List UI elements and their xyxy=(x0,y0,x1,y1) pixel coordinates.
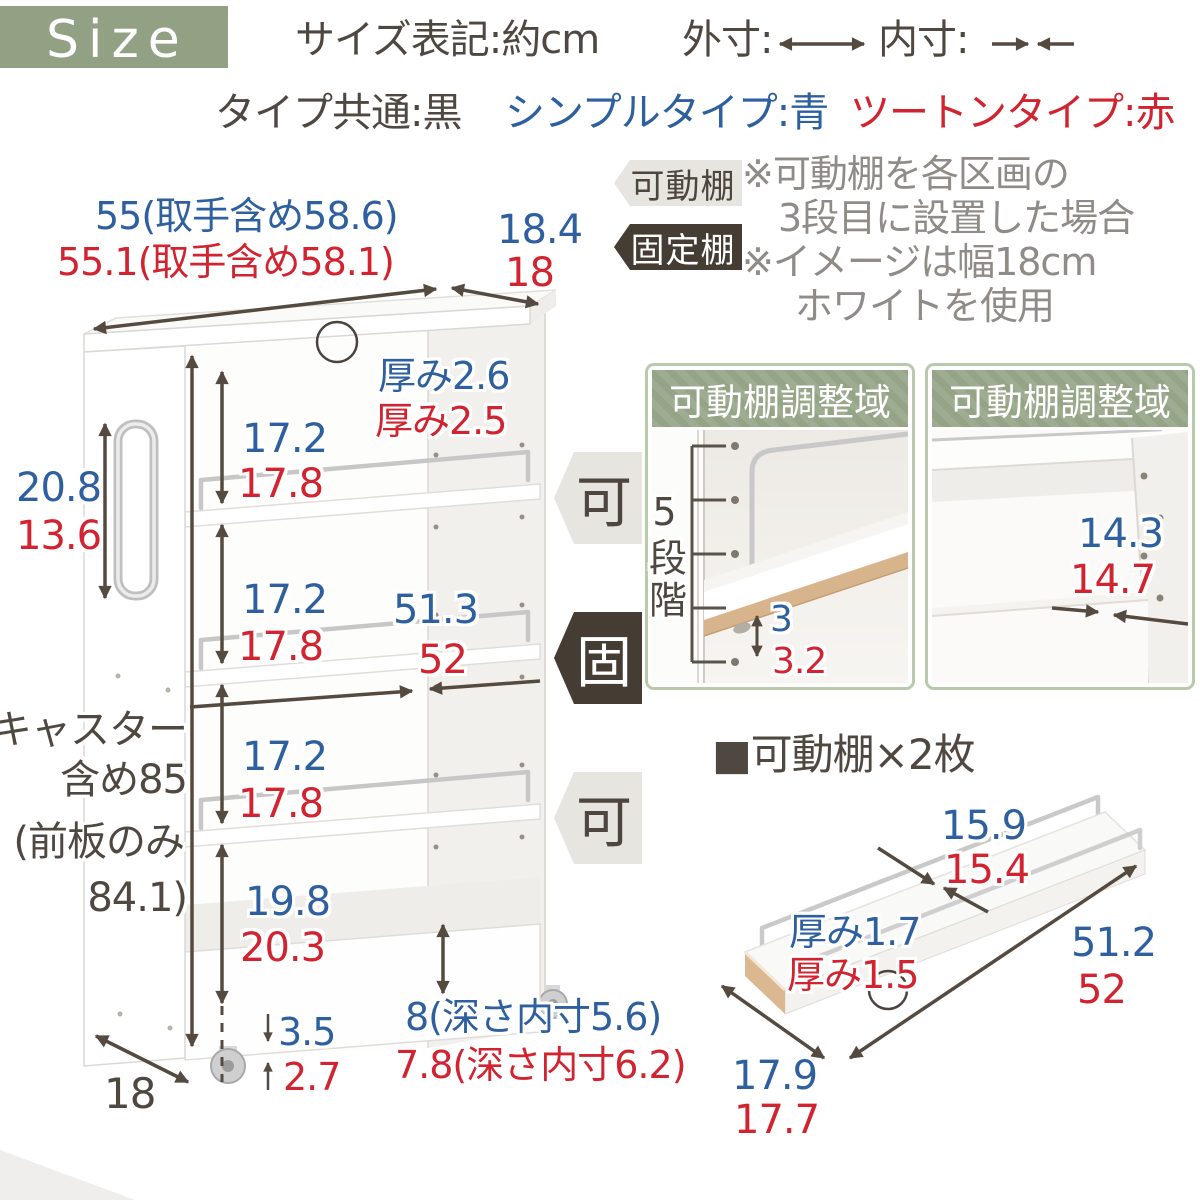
movable-shelf-tag: 可動棚 xyxy=(614,160,742,206)
note-line-2: 3段目に設置した場合 xyxy=(778,199,1134,239)
pitch-outer-label: 3 xyxy=(770,601,792,638)
dim-height-line1: キャスター xyxy=(0,710,187,752)
dim-caster-inner: 2.7 xyxy=(283,1058,340,1098)
type-common-label: タイプ共通:黒 xyxy=(215,93,461,135)
adjust-range-title-left: 可動棚調整域 xyxy=(652,370,908,427)
dim-caster-outer: 3.5 xyxy=(278,1013,335,1053)
dim-inner-width-outer: 51.3 xyxy=(393,590,478,632)
type-simple-label: シンプルタイプ:青 xyxy=(505,93,828,135)
dim-handle-outer: 20.8 xyxy=(16,468,101,510)
type-twotone-label: ツートンタイプ:赤 xyxy=(850,93,1174,135)
shelf-length-outer: 51.2 xyxy=(1071,923,1156,965)
dim-top-depth-inner: 18 xyxy=(505,253,554,295)
shelf-thickness-outer: 厚み1.7 xyxy=(789,913,920,953)
shelf-depth-inner: 15.4 xyxy=(944,850,1029,892)
movable-tag-bottom-label: 可 xyxy=(576,778,632,859)
fixed-shelf-tag: 固定棚 xyxy=(614,224,742,270)
note-line-1: ※可動棚を各区画の xyxy=(742,155,1069,195)
background-corner xyxy=(0,1150,135,1200)
dim-section3-inner: 17.8 xyxy=(238,784,323,826)
dim-section4-outer: 19.8 xyxy=(245,882,330,924)
dim-height-line4: 84.1) xyxy=(87,878,187,920)
dim-top-depth-outer: 18.4 xyxy=(497,210,582,252)
dim-top-thickness-outer: 厚み2.6 xyxy=(378,357,509,397)
shelf-depth-outer: 15.9 xyxy=(941,806,1026,848)
size-notation-label: サイズ表記:約cm xyxy=(295,20,599,62)
dim-bin-depth-inner: 7.8(深さ内寸6.2) xyxy=(395,1046,686,1086)
dim-handle-inner: 13.6 xyxy=(16,516,101,558)
fixed-shelf-tag-label: 固定棚 xyxy=(631,223,736,272)
dim-base-depth: 18 xyxy=(104,1072,155,1116)
size-header-box: Size xyxy=(0,6,228,68)
note-line-4: ホワイトを使用 xyxy=(795,287,1054,327)
fixed-tag-middle-label: 固 xyxy=(576,618,632,699)
dim-inner-width-inner: 52 xyxy=(418,640,467,682)
dim-height-line3: (前板のみ xyxy=(13,822,184,864)
dim-section4-inner: 20.3 xyxy=(240,928,325,970)
dim-top-thickness-inner: 厚み2.5 xyxy=(375,402,506,442)
outer-dim-label: 外寸: xyxy=(682,20,772,62)
pitch-inner-label: 3.2 xyxy=(772,643,826,680)
clearance-inner-label: 14.7 xyxy=(1070,560,1155,602)
shelf-width-outer: 17.9 xyxy=(732,1056,817,1098)
dim-section2-inner: 17.8 xyxy=(238,627,323,669)
dim-section2-outer: 17.2 xyxy=(242,580,327,622)
dim-section1-inner: 17.8 xyxy=(238,464,323,506)
five-steps-label: 5段階 xyxy=(644,490,684,622)
dim-section3-outer: 17.2 xyxy=(242,737,327,779)
shelf-length-inner: 52 xyxy=(1077,970,1126,1012)
dim-bin-depth-outer: 8(深さ内寸5.6) xyxy=(405,998,661,1038)
clearance-outer-label: 14.3 xyxy=(1078,514,1163,556)
shelf-thickness-inner: 厚み1.5 xyxy=(787,956,918,996)
inner-dim-label: 内寸: xyxy=(878,20,968,62)
adjust-range-title-right: 可動棚調整域 xyxy=(932,370,1188,427)
shelf-detail-title: ■可動棚×2枚 xyxy=(712,733,975,777)
shelf-width-inner: 17.7 xyxy=(734,1100,819,1142)
dim-height-line2: 含め85 xyxy=(60,760,187,802)
movable-tag-top-label: 可 xyxy=(576,458,632,539)
note-line-3: ※イメージは幅18cm xyxy=(742,243,1096,283)
dim-width-outer: 55(取手含め58.6) xyxy=(95,197,398,237)
dim-section1-outer: 17.2 xyxy=(242,419,327,461)
size-diagram-page: Size サイズ表記:約cm 外寸: 内寸: タイプ共通:黒 シンプルタイプ:青… xyxy=(0,0,1200,1200)
movable-shelf-tag-label: 可動棚 xyxy=(631,159,736,208)
size-title: Size xyxy=(46,10,189,70)
dim-width-inner: 55.1(取手含め58.1) xyxy=(57,243,394,283)
